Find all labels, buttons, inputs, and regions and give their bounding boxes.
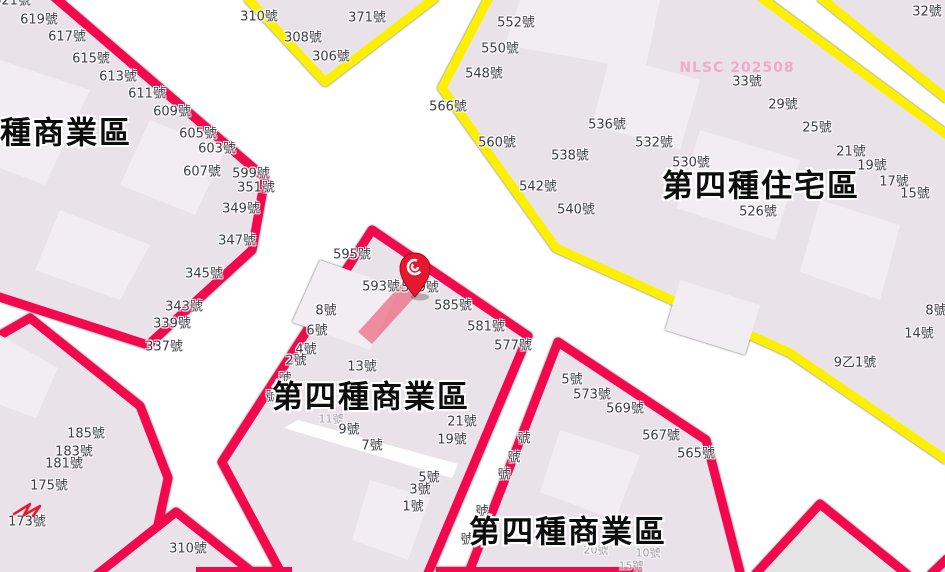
map-canvas[interactable]: 621號619號617號615號613號611號609號605號603號607號… xyxy=(0,0,945,572)
red-annotation-mark xyxy=(14,504,40,516)
location-pin-marker[interactable] xyxy=(400,253,430,297)
marker-layer xyxy=(0,0,945,572)
